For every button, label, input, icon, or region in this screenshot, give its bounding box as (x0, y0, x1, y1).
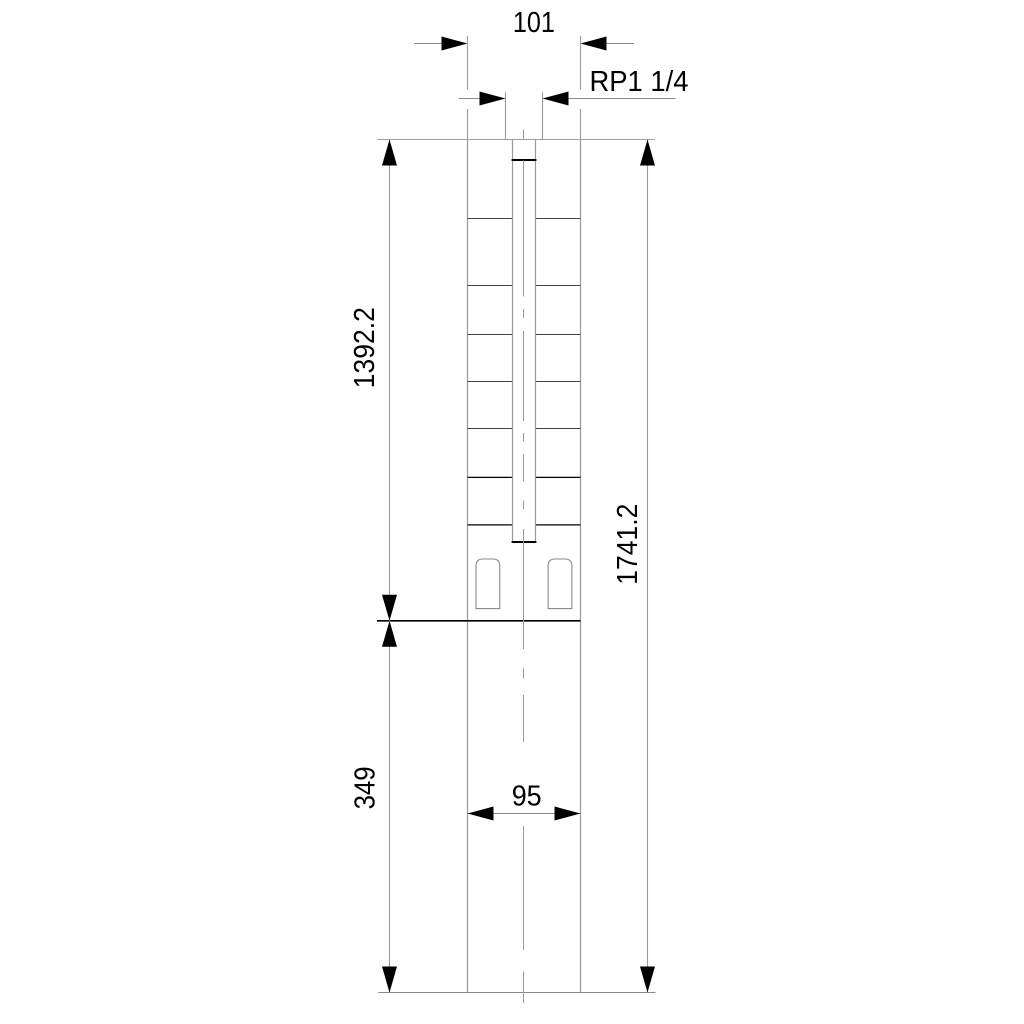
svg-text:1392.2: 1392.2 (349, 307, 381, 388)
svg-text:RP1 1/4: RP1 1/4 (590, 66, 689, 98)
svg-text:101: 101 (513, 7, 555, 39)
svg-text:95: 95 (512, 780, 542, 812)
svg-text:349: 349 (349, 766, 381, 809)
svg-text:1741.2: 1741.2 (612, 504, 644, 585)
